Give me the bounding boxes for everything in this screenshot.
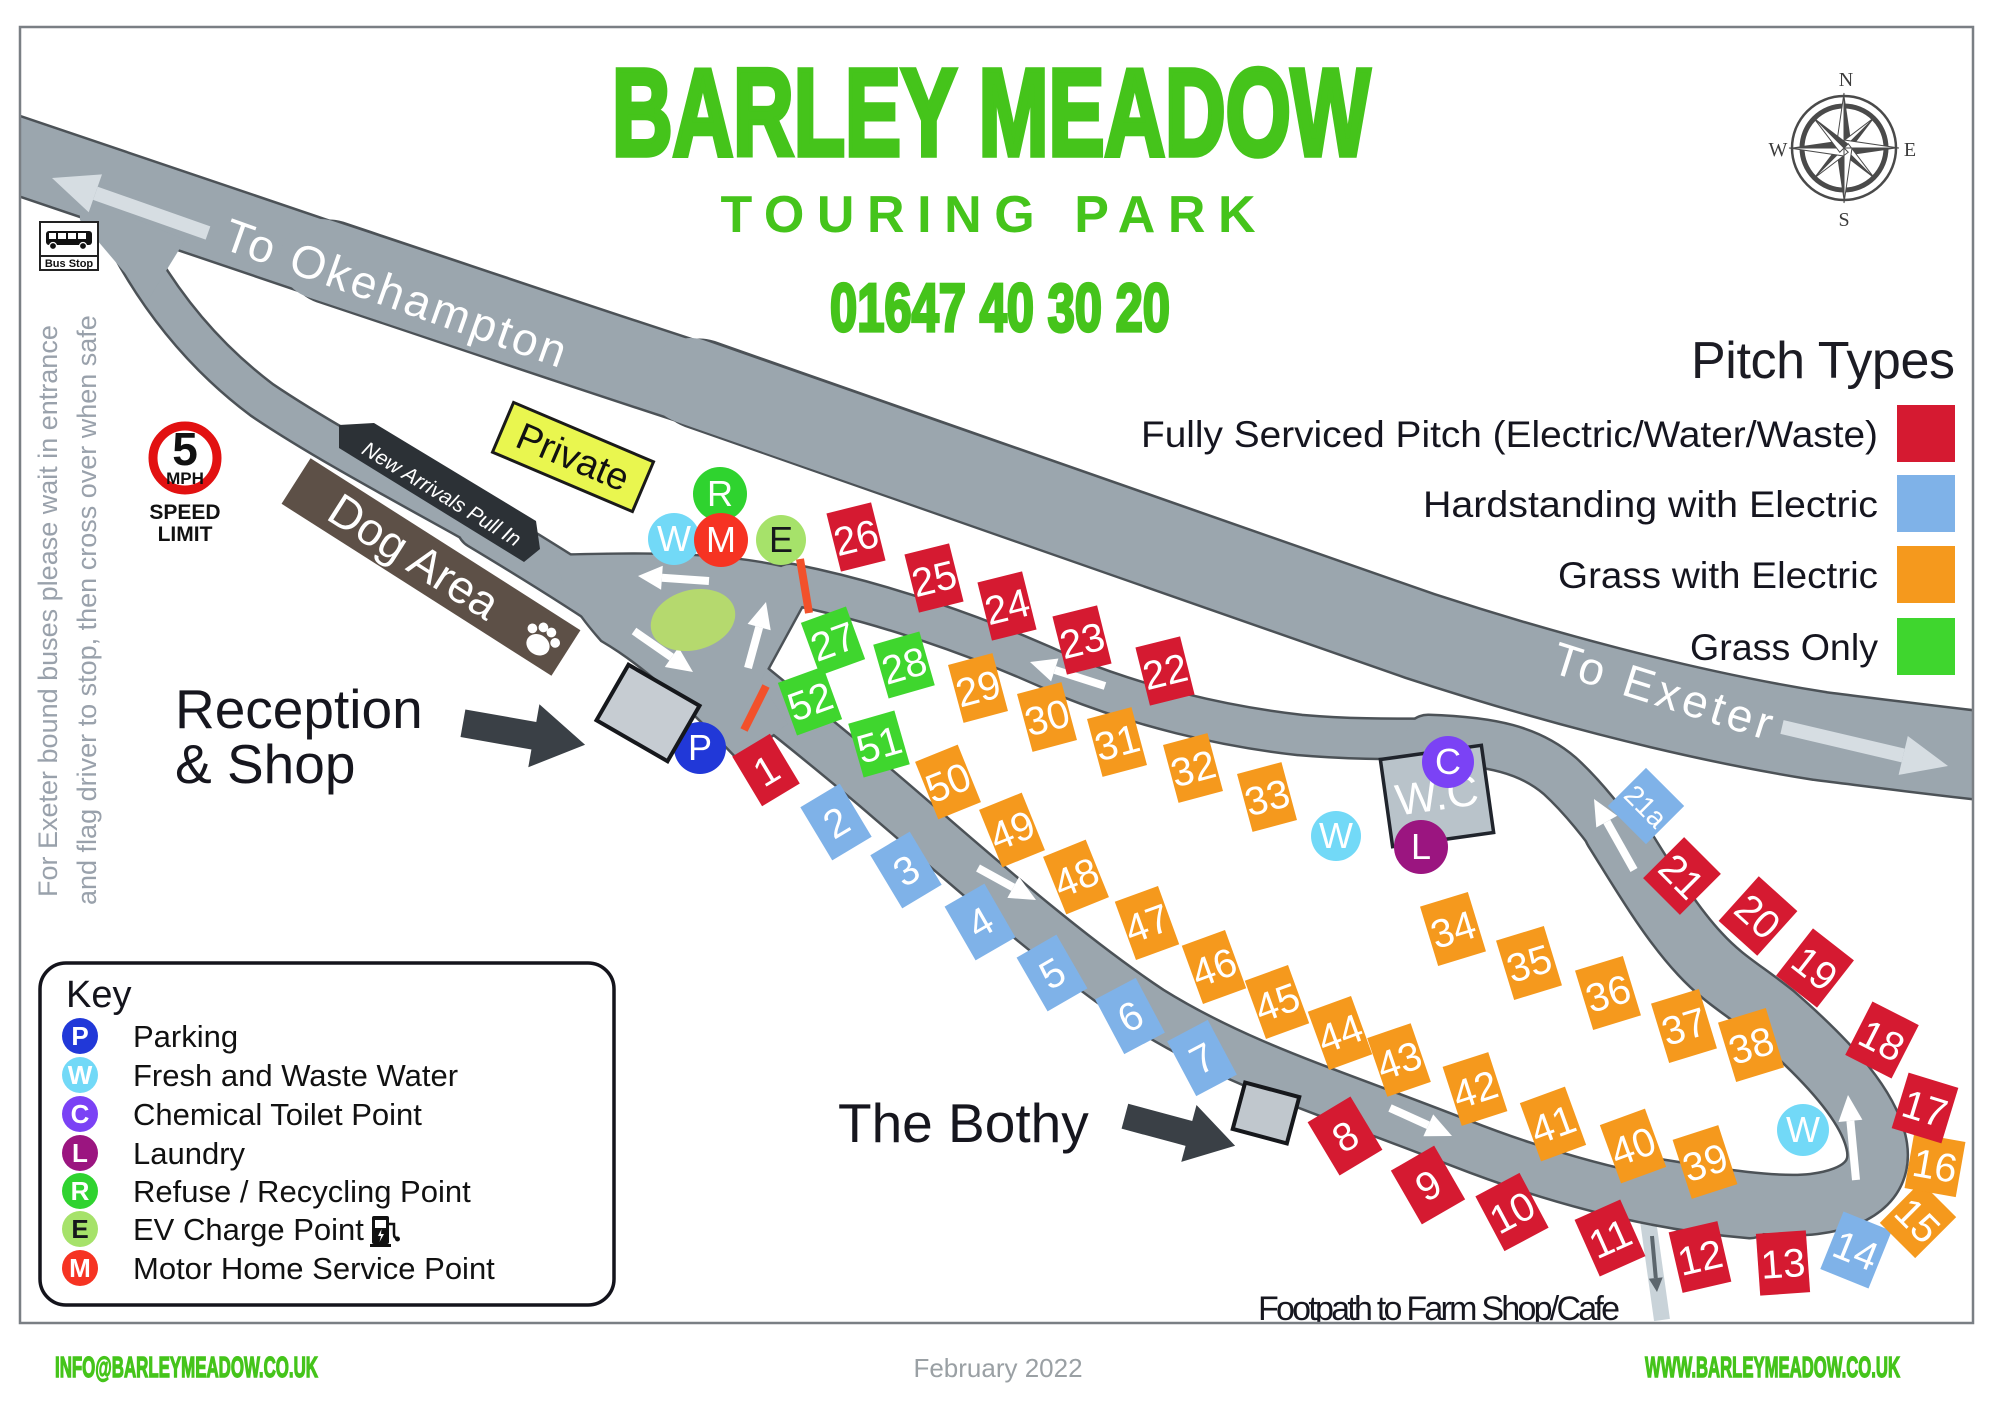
svg-text:13: 13 bbox=[1759, 1241, 1806, 1288]
svg-text:Chemical Toilet Point: Chemical Toilet Point bbox=[133, 1097, 422, 1132]
svg-text:N: N bbox=[1839, 69, 1853, 91]
svg-text:W: W bbox=[1319, 815, 1353, 856]
svg-text:For Exeter bound buses please: For Exeter bound buses please wait in en… bbox=[33, 325, 63, 897]
svg-text:Fresh and Waste Water: Fresh and Waste Water bbox=[133, 1058, 458, 1093]
svg-text:MPH: MPH bbox=[166, 469, 204, 488]
svg-text:W: W bbox=[1786, 1109, 1820, 1150]
svg-text:M: M bbox=[69, 1253, 91, 1283]
svg-text:P: P bbox=[688, 727, 712, 768]
svg-text:W: W bbox=[68, 1060, 93, 1090]
svg-text:Pitch Types: Pitch Types bbox=[1691, 332, 1955, 390]
svg-text:E: E bbox=[1904, 139, 1916, 161]
svg-text:5: 5 bbox=[172, 423, 198, 475]
svg-text:M: M bbox=[706, 519, 736, 560]
svg-text:Motor Home Service Point: Motor Home Service Point bbox=[133, 1251, 495, 1286]
svg-text:R: R bbox=[707, 473, 733, 514]
svg-text:Hardstanding with Electric: Hardstanding with Electric bbox=[1423, 484, 1878, 525]
svg-text:W: W bbox=[657, 518, 691, 559]
svg-text:01647 40 30 20: 01647 40 30 20 bbox=[830, 270, 1170, 346]
svg-text:Reception: Reception bbox=[175, 678, 423, 740]
svg-text:R: R bbox=[71, 1176, 90, 1206]
svg-text:Fully Serviced Pitch (Electric: Fully Serviced Pitch (Electric/Water/Was… bbox=[1141, 414, 1878, 455]
svg-text:W: W bbox=[1769, 139, 1788, 161]
svg-text:L: L bbox=[72, 1138, 88, 1168]
svg-text:C: C bbox=[1435, 741, 1461, 782]
svg-text:E: E bbox=[769, 519, 793, 560]
svg-text:The Bothy: The Bothy bbox=[838, 1092, 1089, 1154]
svg-text:INFO@BARLEYMEADOW.CO.UK: INFO@BARLEYMEADOW.CO.UK bbox=[55, 1352, 318, 1384]
svg-text:Bus Stop: Bus Stop bbox=[45, 258, 94, 270]
svg-text:and flag driver to stop, then: and flag driver to stop, then cross over… bbox=[72, 315, 102, 905]
svg-text:LIMIT: LIMIT bbox=[158, 523, 213, 546]
svg-text:Refuse / Recycling Point: Refuse / Recycling Point bbox=[133, 1174, 471, 1209]
svg-text:Key: Key bbox=[66, 974, 131, 1016]
svg-text:Grass Only: Grass Only bbox=[1690, 627, 1878, 668]
svg-text:& Shop: & Shop bbox=[175, 733, 355, 795]
svg-text:S: S bbox=[1838, 209, 1849, 231]
svg-text:P: P bbox=[71, 1021, 88, 1051]
svg-text:Parking: Parking bbox=[133, 1019, 238, 1054]
svg-text:SPEED: SPEED bbox=[149, 501, 220, 524]
svg-text:Laundry: Laundry bbox=[133, 1136, 246, 1171]
svg-text:C: C bbox=[71, 1099, 90, 1129]
svg-text:E: E bbox=[71, 1214, 88, 1244]
svg-text:EV Charge Point: EV Charge Point bbox=[133, 1212, 364, 1247]
svg-text:WWW.BARLEYMEADOW.CO.UK: WWW.BARLEYMEADOW.CO.UK bbox=[1645, 1352, 1900, 1384]
svg-text:February 2022: February 2022 bbox=[913, 1353, 1082, 1383]
svg-text:L: L bbox=[1411, 826, 1431, 867]
svg-text:BARLEY MEADOW: BARLEY MEADOW bbox=[612, 45, 1370, 182]
svg-text:16: 16 bbox=[1909, 1141, 1960, 1192]
svg-text:Grass with Electric: Grass with Electric bbox=[1558, 555, 1878, 596]
